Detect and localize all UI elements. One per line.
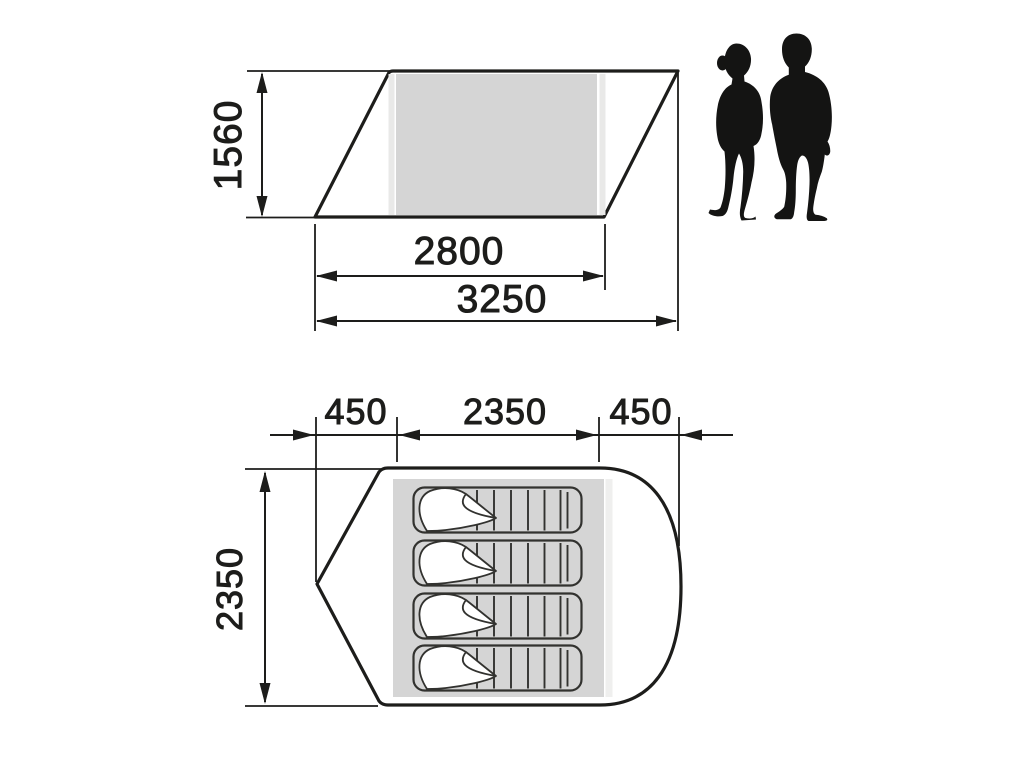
side-total-width-label: 3250 [457,278,548,321]
tent-dimension-diagram-page: 1560 2800 3250 [0,0,1024,768]
arrowhead-up [260,471,271,492]
scale-figures [709,34,832,222]
floor-plan-depth-label: 2350 [209,547,250,631]
side-inner-tent-panel [396,74,597,215]
arrowhead-left [681,430,702,441]
side-inner-tent-left-strip [389,74,395,215]
side-height-label: 1560 [207,100,250,191]
arrowhead-right [576,430,597,441]
arrowhead-left [316,316,337,327]
side-elevation: 1560 2800 3250 [207,71,678,331]
arrowhead-right [656,316,677,327]
floor-plan-right-section-label: 450 [609,391,672,432]
arrowhead-right [583,271,604,282]
floor-plan-left-section-label: 450 [324,391,387,432]
arrowhead-up [257,72,268,93]
side-inner-tent-right-strip [600,74,606,215]
floor-plan-inner-width-label: 2350 [463,391,547,432]
tent-dimension-diagram: 1560 2800 3250 [0,0,1024,768]
arrowhead-right [293,430,314,441]
arrowhead-down [260,683,271,704]
woman-silhouette [709,44,764,221]
arrowhead-down [257,196,268,217]
floor-plan: 450 2350 450 2350 [209,391,733,706]
side-inner-width-label: 2800 [414,230,505,273]
man-silhouette [770,34,832,222]
arrowhead-left [316,271,337,282]
arrowhead-left [399,430,420,441]
floor-plan-door-strip [606,479,613,697]
